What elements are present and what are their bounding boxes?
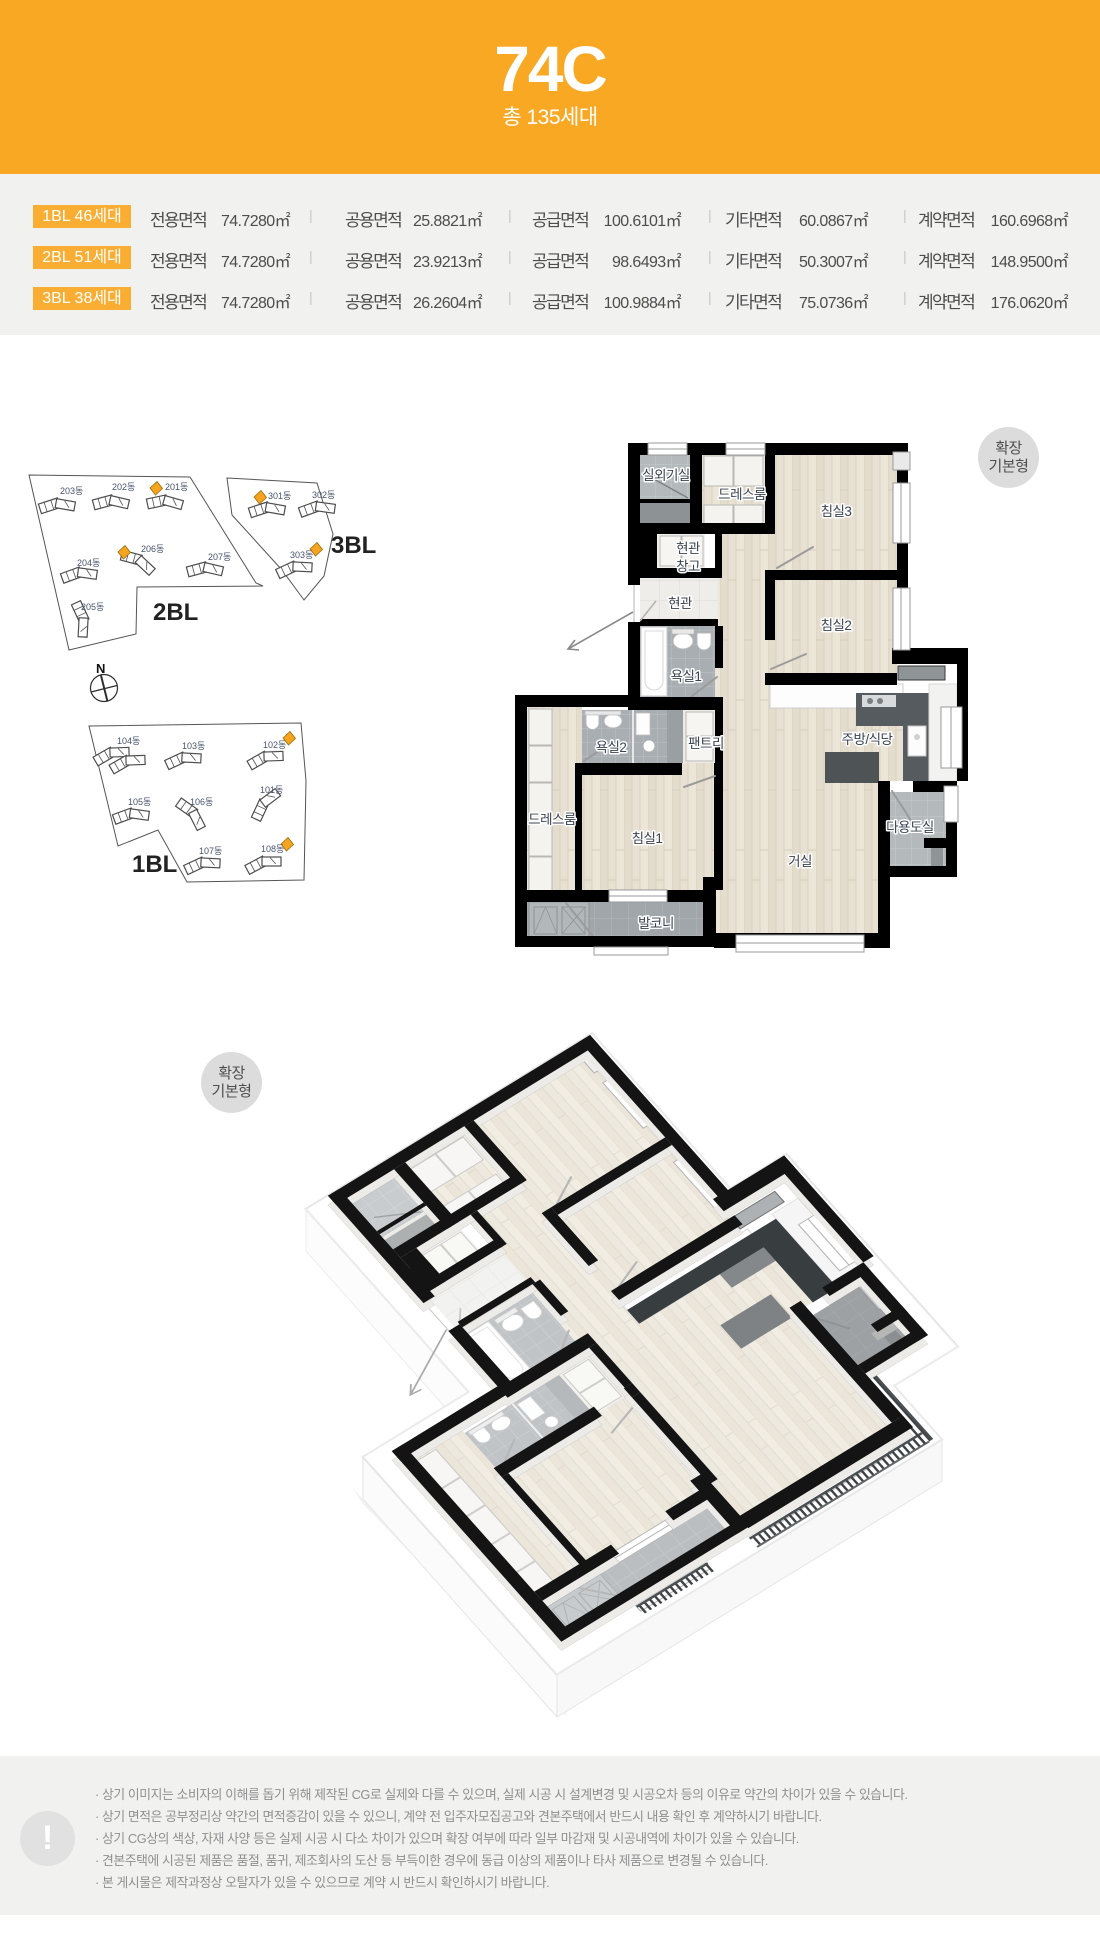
svg-text:205동: 205동	[81, 602, 104, 612]
svg-text:203동: 203동	[60, 486, 83, 496]
svg-text:침실3: 침실3	[821, 504, 852, 519]
svg-text:207동: 207동	[208, 552, 231, 562]
svg-text:드레스룸: 드레스룸	[528, 812, 576, 827]
svg-text:현관: 현관	[668, 596, 692, 611]
svg-text:105동: 105동	[128, 797, 151, 807]
svg-text:103동: 103동	[182, 741, 205, 751]
svg-text:주방/식당: 주방/식당	[842, 732, 893, 747]
svg-text:302동: 302동	[312, 490, 335, 500]
svg-text:206동: 206동	[141, 544, 164, 554]
svg-text:침실1: 침실1	[632, 831, 663, 846]
svg-text:2BL: 2BL	[153, 599, 198, 626]
svg-text:N: N	[96, 661, 105, 676]
svg-text:106동: 106동	[190, 797, 213, 807]
svg-text:욕실2: 욕실2	[596, 740, 627, 755]
svg-text:301동: 301동	[268, 491, 291, 501]
svg-text:204동: 204동	[77, 558, 100, 568]
svg-text:발코니: 발코니	[638, 916, 674, 931]
svg-text:현관: 현관	[676, 541, 700, 556]
svg-text:팬트리: 팬트리	[688, 736, 724, 751]
svg-text:다용도실: 다용도실	[886, 820, 934, 835]
svg-text:침실2: 침실2	[821, 618, 852, 633]
svg-text:1BL: 1BL	[132, 851, 177, 878]
svg-text:욕실1: 욕실1	[671, 669, 702, 684]
svg-text:창고: 창고	[676, 559, 700, 574]
svg-text:104동: 104동	[117, 736, 140, 746]
svg-text:3BL: 3BL	[331, 532, 376, 559]
svg-text:실외기실: 실외기실	[642, 468, 690, 483]
svg-text:드레스룸: 드레스룸	[718, 487, 766, 502]
svg-text:102동: 102동	[263, 740, 286, 750]
svg-text:108동: 108동	[261, 844, 284, 854]
svg-text:거실: 거실	[788, 854, 812, 869]
svg-text:303동: 303동	[290, 550, 313, 560]
svg-text:101동: 101동	[260, 785, 283, 795]
svg-text:107동: 107동	[199, 846, 222, 856]
svg-text:201동: 201동	[165, 482, 188, 492]
svg-text:202동: 202동	[112, 482, 135, 492]
